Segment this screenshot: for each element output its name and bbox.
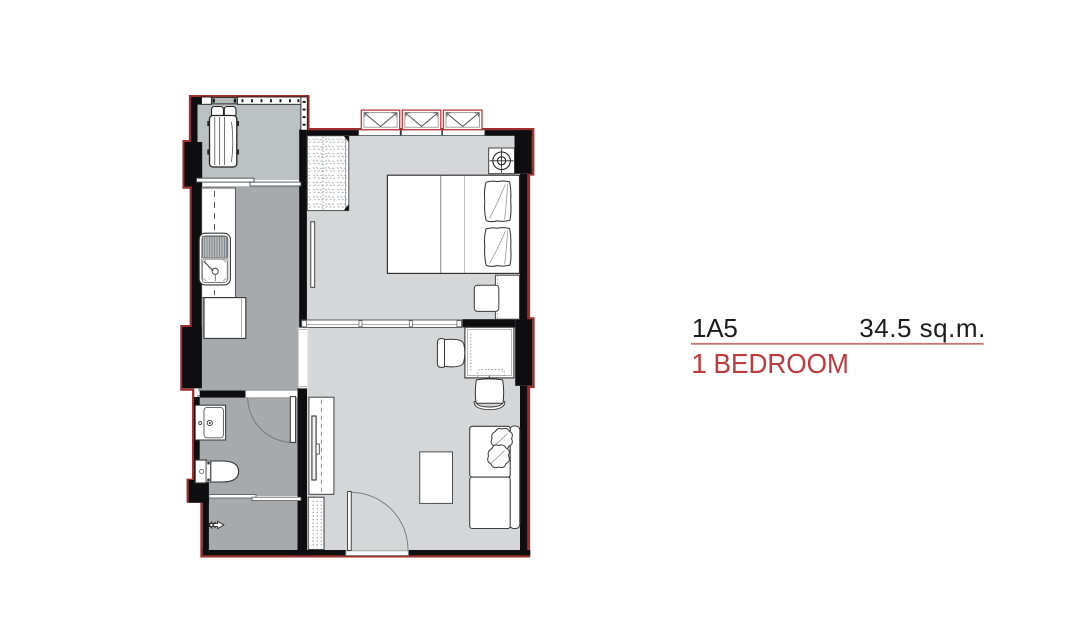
svg-text:1A5: 1A5 [692, 313, 738, 343]
svg-text:BEDROOM: BEDROOM [714, 347, 849, 379]
svg-text:34.5 sq.m.: 34.5 sq.m. [859, 313, 985, 343]
svg-text:1: 1 [691, 347, 707, 379]
